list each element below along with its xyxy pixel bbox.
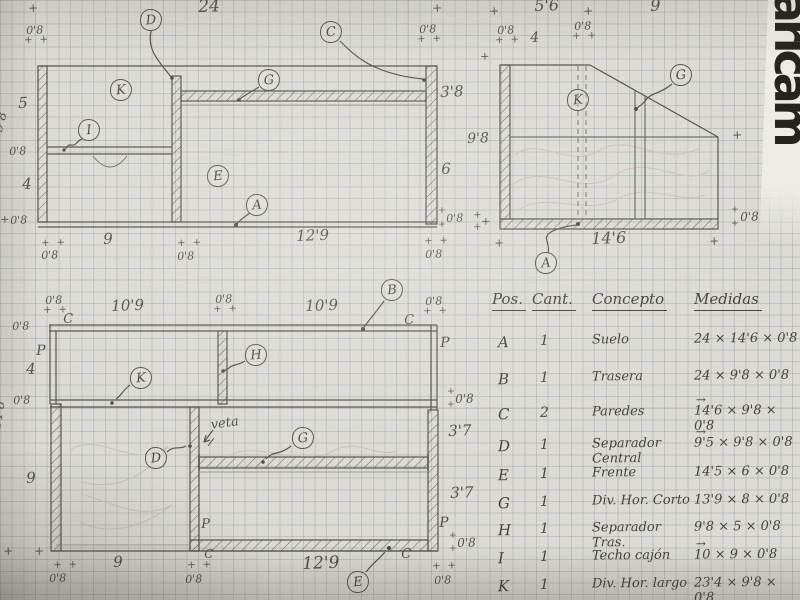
dim-0-8: 0'8 — [455, 392, 474, 405]
table-row-K: K1Div. Hor. largo23'4 × 9'8 × 0'8 — [492, 575, 800, 600]
table-row-D: D1Separador Central9'5 × 9'8 × 0'8→ — [492, 435, 800, 468]
part-qty: 1 — [532, 548, 592, 567]
tick: + — [709, 235, 721, 247]
part-qty: 1 — [532, 436, 592, 467]
dim-6: 6 — [441, 162, 451, 177]
dim-9c: 9 — [26, 471, 36, 486]
tick: + — [34, 545, 46, 557]
part-pos: A — [492, 333, 532, 351]
dim-3-7: 3'7 — [448, 423, 472, 439]
tick: + — [473, 211, 484, 221]
tick: + — [732, 129, 744, 141]
dim-0-8: 0'8 — [12, 320, 29, 332]
letter-C: C — [404, 314, 414, 327]
part-pos: K — [492, 577, 532, 600]
grain-arrow: → — [696, 536, 706, 550]
table-row-E: E1Frente14'5 × 6 × 0'8 — [492, 464, 800, 485]
dim-0-8: 0'8 — [425, 248, 442, 260]
part-dims: 23'4 × 9'8 × 0'8 — [694, 575, 800, 600]
tick: + + — [423, 306, 449, 317]
tick: + + — [213, 304, 239, 315]
table-row-A: A1Suelo24 × 14'6 × 0'8 — [492, 331, 800, 352]
part-dims: 14'5 × 6 × 0'8 — [694, 464, 800, 483]
part-qty: 1 — [532, 576, 592, 600]
part-dims: 14'6 × 9'8 × 0'8→ — [694, 403, 800, 434]
tick: + — [28, 2, 40, 14]
parts-table-header: Pos. Cant. Concepto Medidas — [492, 290, 800, 308]
dim-5: 5 — [18, 96, 28, 111]
letter-C: C — [401, 548, 411, 561]
part-name: Div. Hor. Corto — [592, 493, 694, 512]
dim-0-8: 0'8 — [10, 214, 27, 226]
part-pos: H — [492, 521, 532, 551]
dim-9-top: 9 — [650, 0, 661, 14]
tick: + — [731, 220, 741, 229]
aricam-logo: aricam — [764, 0, 800, 232]
dim-0-8: 0'8 — [9, 145, 26, 157]
tick: + + — [432, 561, 458, 572]
tick: + + — [417, 34, 443, 45]
part-qty: 2 — [532, 404, 592, 435]
col-header-pos: Pos. — [492, 290, 526, 311]
plan-front-E — [190, 540, 428, 551]
table-row-B: B1Trasera24 × 9'8 × 0'8 — [492, 368, 800, 389]
dim-4c: 4 — [26, 362, 36, 377]
side-diagonal — [590, 65, 718, 137]
dim-4b: 4 — [530, 31, 539, 45]
tick: + + — [177, 238, 203, 249]
dim-24: 24 — [198, 0, 220, 16]
dim-10-9: 10'9 — [305, 298, 338, 314]
dim-3-7: 3'7 — [450, 485, 474, 501]
letter-C: C — [63, 313, 73, 326]
plan-separator-D — [190, 407, 199, 551]
plan-right-wall — [428, 410, 438, 551]
plan-view-drawing — [49, 301, 438, 572]
front-shelf-G — [181, 91, 426, 101]
part-dims: 10 × 9 × 0'8→ — [694, 547, 800, 566]
front-left-wall — [38, 66, 47, 222]
table-row-C: C2Paredes14'6 × 9'8 × 0'8→ — [492, 403, 800, 436]
dim-0-8: 0'8 — [434, 574, 451, 586]
dim-12-9: 12'9 — [296, 228, 329, 244]
tick: + — [494, 237, 506, 249]
part-qty: 1 — [532, 520, 592, 551]
part-pos: C — [492, 405, 532, 435]
tick: + — [3, 545, 15, 557]
tick: + — [432, 2, 444, 14]
tick: + + — [41, 238, 67, 249]
table-row-G: G1Div. Hor. Corto13'9 × 8 × 0'8 — [492, 492, 800, 513]
front-right-wall — [426, 66, 437, 224]
grain-arrow: → — [696, 424, 706, 438]
part-name: Trasera — [592, 369, 694, 388]
side-view-drawing — [500, 65, 718, 253]
part-qty: 1 — [532, 493, 592, 512]
tick: + + — [424, 236, 450, 247]
part-pos: I — [492, 549, 532, 567]
tick: + — [438, 221, 448, 230]
part-dims: 13'9 × 8 × 0'8 — [694, 492, 800, 511]
tick: + — [473, 223, 484, 233]
dim-0-8: 0'8 — [41, 249, 58, 261]
dim-0-8: 0'8 — [177, 250, 194, 262]
plan-separator-H — [218, 331, 227, 404]
dim-0-8: 0'8 — [185, 573, 202, 585]
dim-12-9: 12'9 — [302, 555, 340, 573]
front-arc — [93, 156, 127, 167]
side-left-wall — [500, 65, 510, 219]
tick: + — [489, 5, 501, 17]
plan-shelf-G — [199, 457, 428, 468]
part-name: Techo cajón — [592, 548, 694, 567]
letter-P: P — [36, 344, 46, 358]
tick: + — [447, 401, 457, 410]
parts-table: Pos. Cant. Concepto Medidas A1Suelo24 × … — [492, 290, 800, 596]
dim-0-8: 0'8 — [740, 210, 759, 223]
col-header-concepto: Concepto — [592, 290, 667, 311]
dim-9-8: 9'8 — [467, 131, 489, 146]
plan-left-wall — [51, 404, 61, 551]
tick: + — [480, 51, 492, 62]
col-header-cant: Cant. — [532, 290, 576, 311]
tick: + + — [24, 35, 50, 46]
letter-P: P — [439, 516, 449, 530]
dim-0-8: 0'8 — [49, 572, 66, 584]
part-dims: 24 × 9'8 × 0'8 — [694, 368, 800, 387]
letter-C: C — [204, 548, 214, 560]
dim-9d: 9 — [113, 555, 123, 570]
front-center-divider-D — [172, 76, 181, 222]
part-pos: E — [492, 466, 532, 484]
part-dims: 9'8 × 5 × 0'8 — [694, 519, 800, 550]
part-name: Frente — [592, 465, 694, 484]
tick: + — [583, 5, 595, 17]
tick: + — [449, 545, 459, 554]
dim-9: 9 — [103, 232, 113, 247]
part-qty: 1 — [532, 369, 592, 388]
part-name: Suelo — [592, 332, 694, 351]
part-dims: 24 × 14'6 × 0'8 — [694, 331, 800, 350]
tick: + + — [572, 31, 598, 42]
letter-P: P — [440, 336, 450, 350]
table-row-I: I1Techo cajón10 × 9 × 0'8→ — [492, 547, 800, 568]
dim-0-8: 0'8 — [457, 536, 476, 549]
tick: + + — [187, 560, 213, 571]
dim-3-8: 3'8 — [440, 84, 464, 100]
dim-4: 4 — [22, 177, 32, 192]
part-qty: 1 — [532, 332, 592, 351]
tick: + + — [495, 35, 521, 46]
dim-0-8: 0'8 — [446, 212, 463, 224]
grain-arrow: → — [696, 392, 706, 406]
part-name: Div. Hor. largo — [592, 576, 694, 600]
part-name: Paredes — [592, 404, 694, 435]
part-pos: D — [492, 437, 532, 467]
part-pos: G — [492, 494, 532, 512]
part-name: Separador Central — [592, 436, 694, 467]
tick: + + — [53, 560, 79, 571]
dim-5-6: 5'6 — [534, 0, 559, 14]
part-qty: 1 — [532, 465, 592, 484]
dim-10-9: 10'9 — [111, 298, 144, 314]
grain-note: veta — [210, 415, 240, 432]
photo-of-hand-drawn-cabinet-plan: +0'8+ +24+0'8+ +53'89'80'8469'8+0'8++0'8… — [0, 0, 800, 600]
part-pos: B — [492, 370, 532, 388]
letter-P: P — [201, 518, 210, 531]
part-name: Separador Tras. — [592, 520, 694, 551]
part-dims: 9'5 × 9'8 × 0'8→ — [694, 435, 800, 466]
col-header-medidas: Medidas — [694, 290, 762, 311]
dim-0-8: 0'8 — [13, 394, 30, 406]
dim-14-6: 14'6 — [591, 230, 626, 247]
